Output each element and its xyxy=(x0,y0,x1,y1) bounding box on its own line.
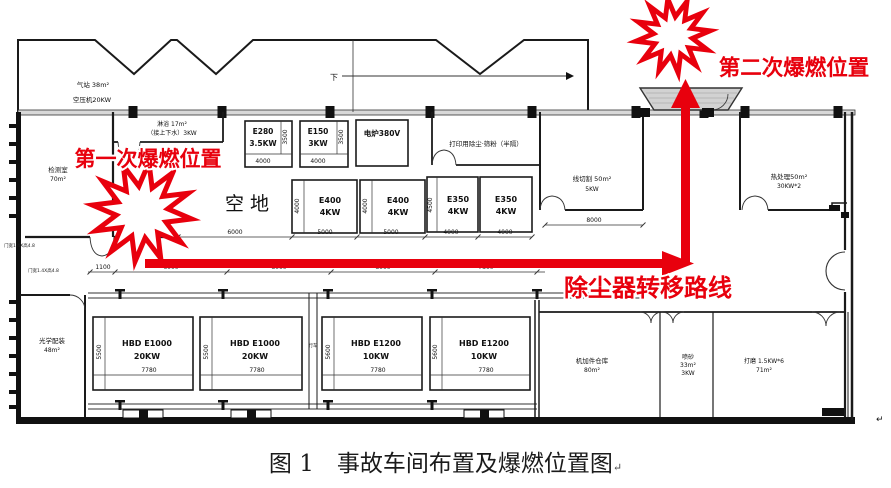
machine-name: HBD E1200 xyxy=(351,339,401,348)
equipment-block xyxy=(841,212,849,218)
door-arc xyxy=(742,196,755,210)
machine-power: 4KW xyxy=(448,207,469,216)
inspection-room-area: 70m² xyxy=(50,176,66,183)
machine-power: 20KW xyxy=(134,352,160,361)
wire-cutting-room: 线切割 50m² 5KW 8000 xyxy=(540,112,646,228)
wall-note: 门宽1.4X高4.8 xyxy=(28,267,59,274)
flow-direction-arrowhead-icon xyxy=(566,72,574,80)
grinding-label: 打磨 1.5KW*6 xyxy=(744,357,784,365)
east-door-arc-top xyxy=(826,252,845,271)
machine-name: HBD E1200 xyxy=(459,339,509,348)
dim-height: 5600 xyxy=(325,344,332,359)
dim-width: 7780 xyxy=(249,367,264,374)
shower-room-label: 淋浴 17m² xyxy=(157,120,187,128)
dim-height: 4000 xyxy=(362,198,369,213)
open-area-label: 空地 xyxy=(225,193,275,215)
first-explosion-label: 第一次爆燃位置 xyxy=(75,147,222,171)
machine-power: 10KW xyxy=(471,352,497,361)
dim-height: 5500 xyxy=(203,344,210,359)
figure-caption: 图 1 事故车间布置及爆燃位置图↵ xyxy=(0,444,891,478)
sandblast-area: 33m² xyxy=(680,362,696,369)
machine-power: 10KW xyxy=(363,352,389,361)
wall-notes: 门宽1.4X高4.8 门宽1.4X高4.8 xyxy=(4,242,59,274)
dim-height: 3500 xyxy=(282,129,289,144)
door-arc xyxy=(640,312,651,323)
paragraph-mark: ↵ xyxy=(613,461,622,474)
wire-cutting-label: 线切割 50m² xyxy=(573,174,612,183)
warehouse-label: 机加件仓库 xyxy=(576,356,609,365)
dim-label: 1100 xyxy=(95,264,110,271)
door-arc xyxy=(552,196,565,210)
printer-hbd-4: HBD E1200 10KW 7780 5600 xyxy=(430,317,530,390)
print-dust-room-label: 打印用除尘·筛粉（半隔） xyxy=(449,139,523,148)
door-arc xyxy=(826,312,840,326)
wall-note: 门宽1.4X高4.8 xyxy=(4,242,35,249)
machine-power: 4KW xyxy=(320,208,341,217)
door-arc xyxy=(540,196,552,210)
door-arc xyxy=(432,150,444,165)
door-arc xyxy=(90,237,102,256)
dim-width: 7780 xyxy=(141,367,156,374)
machine-name: E400 xyxy=(387,196,410,205)
workshop-floor-plan: 气站 38m² 空压机20KW 下 检测室 70m² 淋浴 17m² （接上下水… xyxy=(0,0,891,434)
east-door-arc-bottom xyxy=(826,271,845,290)
machine-power: 4KW xyxy=(496,207,517,216)
printer-hbd-2: HBD E1000 20KW 7780 5500 xyxy=(200,317,302,390)
open-area-dim: 6000 xyxy=(227,229,242,236)
machine-e400-2: E400 4KW 4000 xyxy=(360,180,425,233)
dim-width: 4000 xyxy=(255,158,270,165)
optical-assembly-room: 光学配装 48m² xyxy=(20,295,85,417)
machine-power: 3KW xyxy=(308,139,328,148)
machine-name: E150 xyxy=(308,127,329,136)
door-arc xyxy=(444,150,456,165)
dim-height: 5500 xyxy=(96,344,103,359)
grinding-area: 71m² xyxy=(756,367,772,374)
open-area: 空地 xyxy=(225,193,275,215)
dim-width: 4000 xyxy=(310,158,325,165)
sandblast-label: 喷砂 xyxy=(682,353,694,361)
route-label: 除尘器转移路线 xyxy=(564,274,732,302)
second-explosion-starburst-icon xyxy=(631,0,716,78)
dim-height: 4500 xyxy=(427,197,434,212)
dim-height: 3500 xyxy=(338,129,345,144)
inspection-room-label: 检测室 xyxy=(48,165,68,174)
machine-name: 电炉380V xyxy=(364,128,401,138)
first-explosion-starburst-icon xyxy=(86,156,199,269)
e400-dim: 5000 xyxy=(383,229,398,236)
gas-station-label: 气站 38m² xyxy=(77,80,110,89)
optical-assembly-area: 48m² xyxy=(44,347,60,354)
crane-column-label: 行车 xyxy=(309,342,318,349)
machine-name: E400 xyxy=(319,196,342,205)
red-annotations: 第一次爆燃位置 第二次爆燃位置 除尘器转移路线 xyxy=(75,0,870,302)
figure-page: 气站 38m² 空压机20KW 下 检测室 70m² 淋浴 17m² （接上下水… xyxy=(0,0,891,488)
door-arc xyxy=(812,312,826,326)
air-compressor-label: 空压机20KW xyxy=(73,95,112,104)
second-explosion-label: 第二次爆燃位置 xyxy=(719,55,870,81)
page-return-mark: ↵ xyxy=(876,415,884,425)
machine-name: E350 xyxy=(495,195,518,204)
dim-height: 5600 xyxy=(432,344,439,359)
dim-width: 7780 xyxy=(370,367,385,374)
north-wall xyxy=(18,110,855,115)
heat-treatment-room: 热处理50m² 30KW*2 xyxy=(740,112,849,218)
crane-rails: 行车 xyxy=(88,289,640,410)
equipment-block xyxy=(822,408,844,416)
machine-power: 4KW xyxy=(388,208,409,217)
door-thresholds xyxy=(123,410,504,418)
flow-direction-label: 下 xyxy=(330,73,338,82)
machine-e350-1: E350 4KW 4500 xyxy=(427,177,478,232)
machine-power: 3.5KW xyxy=(249,139,277,148)
door-arc xyxy=(70,295,85,310)
west-wall-ticks xyxy=(9,124,16,409)
heat-treatment-label: 热处理50m² xyxy=(771,172,808,181)
warehouse-area: 80m² xyxy=(584,367,600,374)
west-wall xyxy=(16,112,21,422)
shower-room-note: （接上下水）3KW xyxy=(147,129,197,137)
machine-power: 20KW xyxy=(242,352,268,361)
optical-assembly-label: 光学配装 xyxy=(39,336,66,345)
door-arc xyxy=(662,312,673,323)
e350-dim: 4000 xyxy=(443,229,458,236)
door-arc xyxy=(755,196,768,210)
dim-height: 4000 xyxy=(294,198,301,213)
machine-name: HBD E1000 xyxy=(230,339,280,348)
route-arrow-vertical xyxy=(681,106,690,264)
machine-name: E350 xyxy=(447,195,470,204)
printer-hbd-3: HBD E1200 10KW 7780 5600 xyxy=(322,317,422,390)
southeast-rooms: 机加件仓库 80m² 喷砂 33m² 3KW 打磨 1.5KW*6 71m² xyxy=(535,300,845,417)
print-dust-room: 打印用除尘·筛粉（半隔） xyxy=(432,112,540,165)
wire-cutting-dim: 8000 xyxy=(586,217,601,224)
machine-e400-1: E400 4KW 4000 xyxy=(292,180,357,233)
machine-e350-2: E350 4KW xyxy=(480,177,532,232)
wire-cutting-power: 5KW xyxy=(585,186,599,193)
figure-caption-text: 图 1 事故车间布置及爆燃位置图 xyxy=(269,451,613,477)
heat-treatment-power: 30KW*2 xyxy=(777,183,801,190)
route-arrow-horizontal xyxy=(145,259,662,268)
machine-e280: E280 3.5KW 4000 3500 xyxy=(245,121,292,167)
machine-name: HBD E1000 xyxy=(122,339,172,348)
sandblast-power: 3KW xyxy=(681,370,695,377)
equipment-block xyxy=(829,205,840,211)
machine-name: E280 xyxy=(253,127,274,136)
door-arc xyxy=(673,312,684,323)
machine-furnace-380v: 电炉380V xyxy=(356,120,408,166)
e350-dim: 4000 xyxy=(497,229,512,236)
dim-width: 7780 xyxy=(478,367,493,374)
gas-station-area: 气站 38m² 空压机20KW 下 xyxy=(73,40,574,112)
machine-e150: E150 3KW 4000 3500 xyxy=(300,121,348,167)
e400-dim: 5000 xyxy=(317,229,332,236)
printer-hbd-1: HBD E1000 20KW 7780 5500 xyxy=(93,317,193,390)
